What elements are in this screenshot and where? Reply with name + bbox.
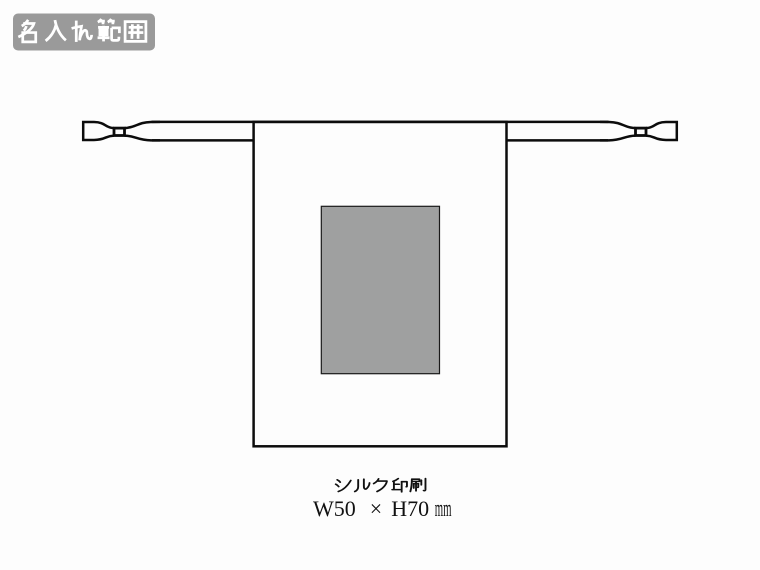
svg-text:mm: mm xyxy=(435,495,452,522)
svg-text:W50×H70: W50×H70 xyxy=(313,496,429,521)
